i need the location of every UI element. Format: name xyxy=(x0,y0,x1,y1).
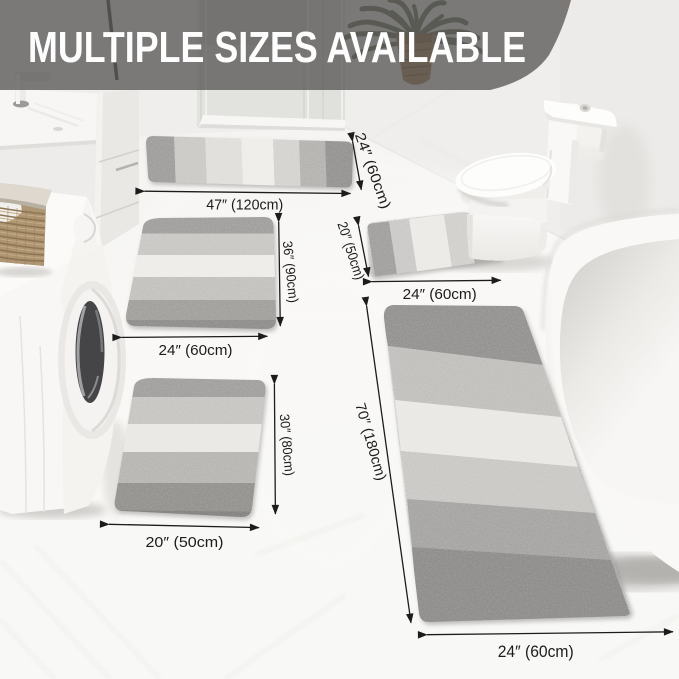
svg-text:20″ (50cm): 20″ (50cm) xyxy=(146,534,224,551)
svg-text:24″ (60cm): 24″ (60cm) xyxy=(498,643,574,661)
svg-text:24″ (60cm): 24″ (60cm) xyxy=(159,343,233,359)
svg-text:MULTIPLE SIZES AVAILABLE: MULTIPLE SIZES AVAILABLE xyxy=(28,23,526,72)
svg-text:47″ (120cm): 47″ (120cm) xyxy=(206,198,283,214)
svg-text:24″ (60cm): 24″ (60cm) xyxy=(403,287,477,303)
